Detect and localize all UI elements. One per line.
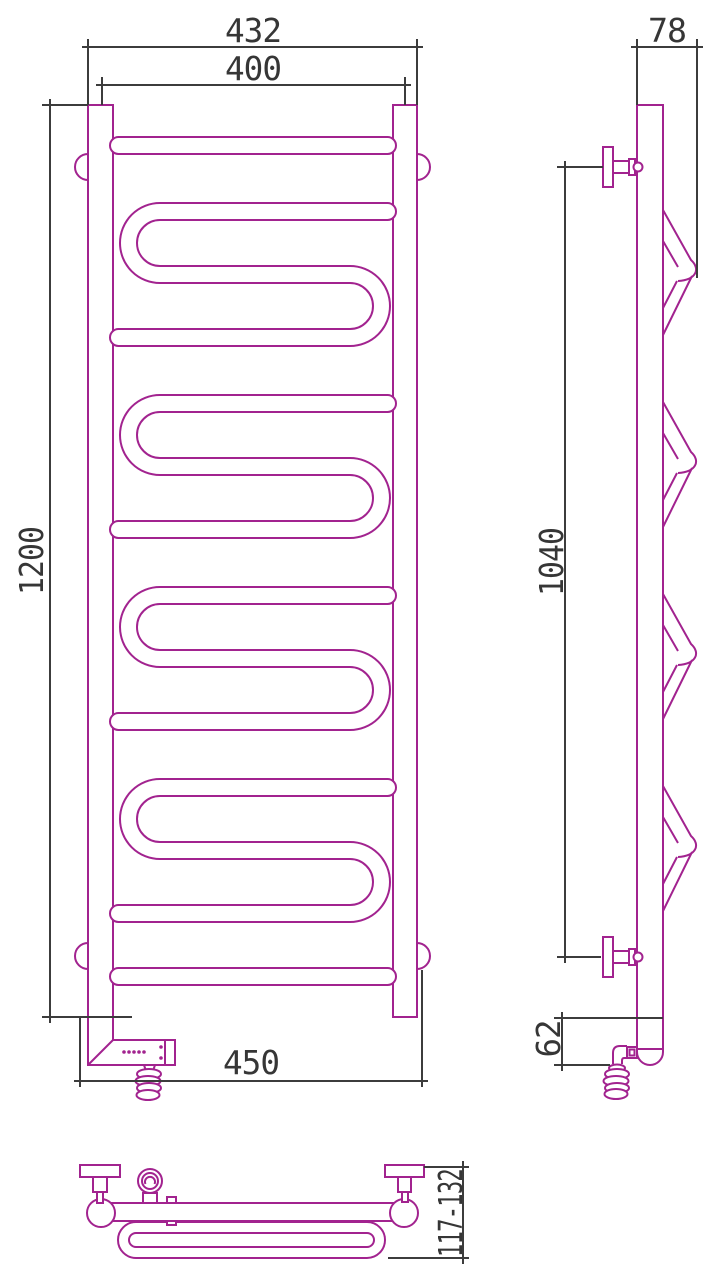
wall-bracket-front-top-right [417, 154, 430, 180]
dim-wall-clearance-label: 117-132 [431, 1169, 470, 1257]
serpentine-coil-2 [110, 395, 396, 538]
technical-drawing-page: 432 400 1200 450 78 1040 62 117-132 [0, 0, 717, 1280]
wall-bracket-front-top-left [75, 154, 88, 180]
top-tube-body [101, 1204, 404, 1220]
power-cable-side [604, 1046, 638, 1099]
top-view [80, 1165, 424, 1258]
coil-pass-tab-bottom [167, 1221, 176, 1225]
wall-bracket-top-left [80, 1165, 120, 1203]
dim-bottom-offset-label: 62 [529, 1021, 568, 1058]
top-rail [110, 137, 396, 154]
coil-hook-3 [663, 594, 696, 719]
coil-pass-tab-top [167, 1197, 176, 1203]
right-collector [393, 105, 417, 1017]
power-cable-coil-front [136, 1065, 162, 1100]
side-tube [637, 105, 663, 1065]
dim-depth-label: 78 [648, 11, 686, 50]
coil-hook-4 [663, 786, 696, 911]
cable-elbow [613, 1046, 627, 1064]
side-view [603, 105, 696, 1099]
wall-bracket-front-bottom-right [417, 943, 430, 969]
towel-rail-drawing: 432 400 1200 450 78 1040 62 117-132 [0, 0, 717, 1280]
dim-bottom-width-label: 450 [223, 1043, 279, 1082]
wall-bracket-front-bottom-left [75, 943, 88, 969]
front-view [75, 105, 430, 1100]
serpentine-coil-4 [110, 779, 396, 922]
dim-overall-height-label: 1200 [12, 527, 51, 595]
dim-overall-width-label: 432 [225, 11, 281, 50]
coil-hook-2 [663, 402, 696, 527]
coil-loop-outer [118, 1222, 385, 1258]
coil-hook-1 [663, 210, 696, 335]
bottom-rail [110, 968, 396, 985]
serpentine-coil-1 [110, 203, 396, 346]
wall-bracket-top-right [385, 1165, 424, 1202]
dim-center-width-label: 400 [225, 49, 281, 88]
ball-joint-right [390, 1199, 418, 1227]
serpentine-coil-3 [110, 587, 396, 730]
coil-loop-inner [129, 1233, 374, 1247]
dim-bracket-span-label: 1040 [532, 528, 571, 596]
thermostat-head [138, 1169, 162, 1203]
